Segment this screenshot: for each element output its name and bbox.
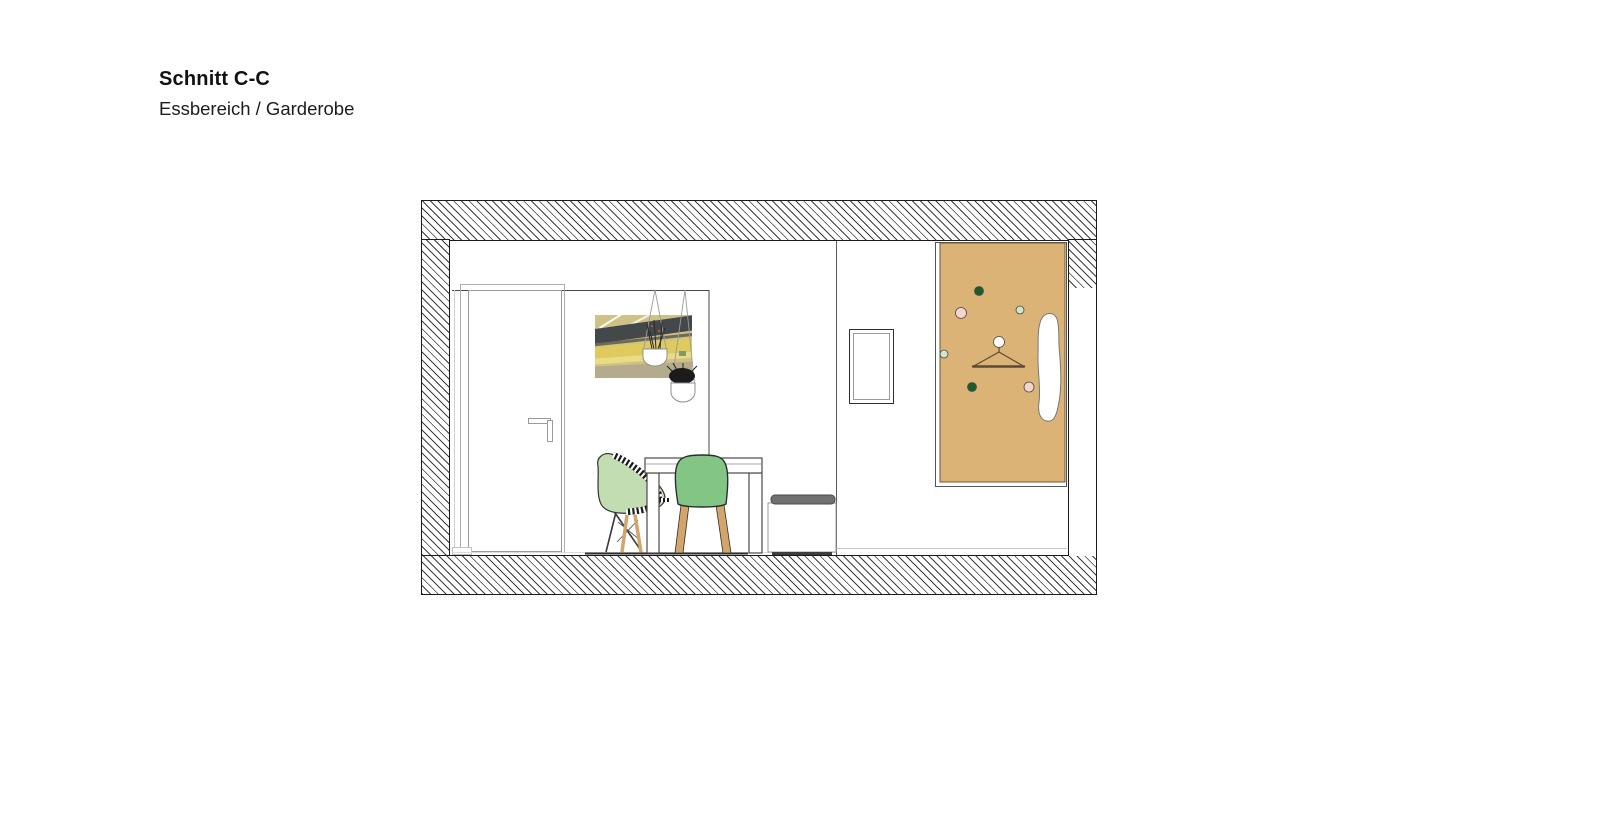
chair-leg [716, 505, 731, 553]
cabinet-base [772, 552, 832, 555]
chair-green [675, 455, 731, 553]
page-subtitle: Essbereich / Garderobe [159, 98, 354, 120]
section-drawing [421, 200, 1097, 595]
peg-pink [1024, 382, 1034, 392]
furniture-layer [421, 200, 1097, 595]
hanging-plant-2 [667, 290, 697, 402]
peg-mint [1016, 306, 1024, 314]
plant-pot-1 [643, 349, 667, 366]
page-title: Schnitt C-C [159, 68, 354, 91]
peg-mint [940, 350, 948, 358]
table-leg-left [647, 473, 659, 553]
hanging-plant-1 [643, 290, 667, 366]
bench-cabinet [768, 495, 836, 555]
peg-pink [956, 308, 967, 319]
peg-white [994, 337, 1005, 348]
chair-leg [675, 505, 689, 553]
table-leg-right [749, 473, 762, 553]
peg-dark-green [975, 287, 984, 296]
title-block: Schnitt C-C Essbereich / Garderobe [159, 68, 354, 120]
bench-cushion [771, 495, 835, 504]
canvas: { "title_block": { "title": "Schnitt C-C… [0, 0, 1600, 835]
chair-shell [675, 455, 727, 507]
hanging-garment [1038, 313, 1061, 421]
plant-pot-2 [671, 383, 695, 402]
wardrobe-panel [940, 243, 1065, 482]
peg-dark-green [968, 383, 977, 392]
cabinet-body [768, 503, 836, 552]
